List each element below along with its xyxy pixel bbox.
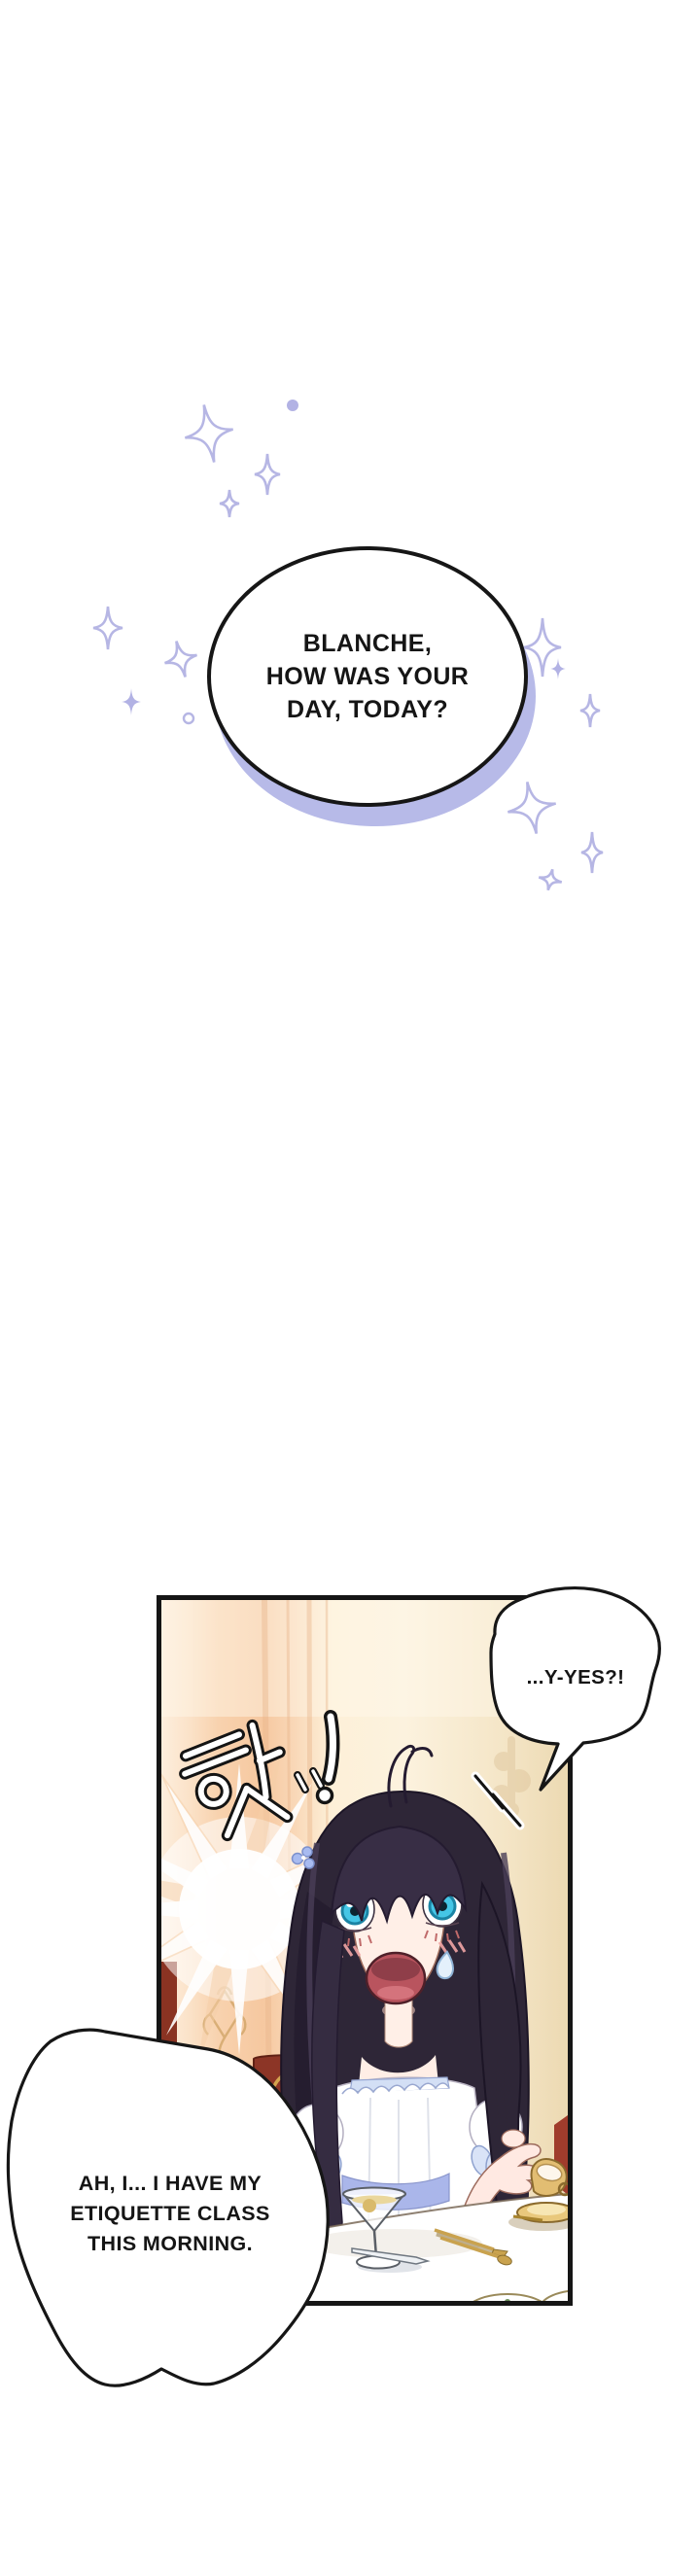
hand-second <box>502 2130 525 2147</box>
speech-bubble-greeting: BLANCHE, HOW WAS YOUR DAY, TODAY? <box>207 546 528 807</box>
answer-text: AH, I... I HAVE MY ETIQUETTE CLASS THIS … <box>43 2169 297 2259</box>
greeting-text: BLANCHE, HOW WAS YOUR DAY, TODAY? <box>266 627 470 726</box>
webtoon-page: BLANCHE, HOW WAS YOUR DAY, TODAY? 핫 ! '' <box>0 0 700 2576</box>
sparkle-dot <box>287 400 298 411</box>
mouth-open <box>367 1953 425 2003</box>
reply-text: ...Y-YES?! <box>498 1663 653 1692</box>
sparkle-group-left <box>93 607 201 723</box>
sparkle-cluster-top <box>180 400 298 517</box>
